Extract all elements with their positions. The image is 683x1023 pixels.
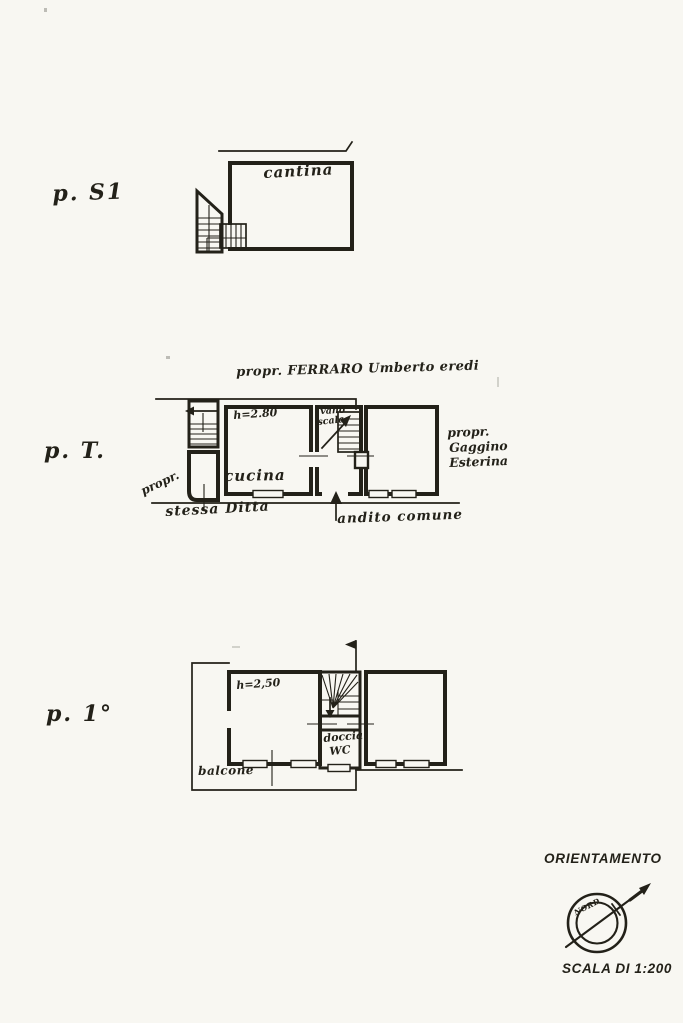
shower-label-line2: WC <box>329 744 351 757</box>
scan-speck <box>44 8 47 12</box>
height-note-first: h=2,50 <box>236 677 281 691</box>
height-note-ground: h=2.80 <box>233 407 278 421</box>
neighbor-note-line3: Esterina <box>449 455 508 470</box>
floor-s1-plan <box>197 142 352 252</box>
balcony-label: balcone <box>198 764 254 777</box>
room-label-cantina: cantina <box>263 162 334 181</box>
floor-s1-label: p. S1 <box>52 180 125 204</box>
scan-speck <box>232 646 240 648</box>
scan-speck <box>166 356 170 359</box>
floor-plan-sheet: p. S1 cantina propr. FERRARO Umberto ere… <box>0 0 683 1023</box>
floor-1-label: p. 1° <box>46 703 113 725</box>
scale-label: SCALA DI 1:200 <box>562 962 672 976</box>
orientation-title: ORIENTAMENTO <box>544 852 662 866</box>
flag-marker-icon <box>345 640 356 649</box>
shower-label-line1: doccia <box>323 730 364 744</box>
scan-speck <box>497 377 499 387</box>
neighbor-note-line1: propr. <box>447 426 490 440</box>
compass-icon <box>566 883 651 952</box>
room-label-cucina: cucina <box>224 468 286 484</box>
floor-t-label: p. T. <box>44 440 106 462</box>
